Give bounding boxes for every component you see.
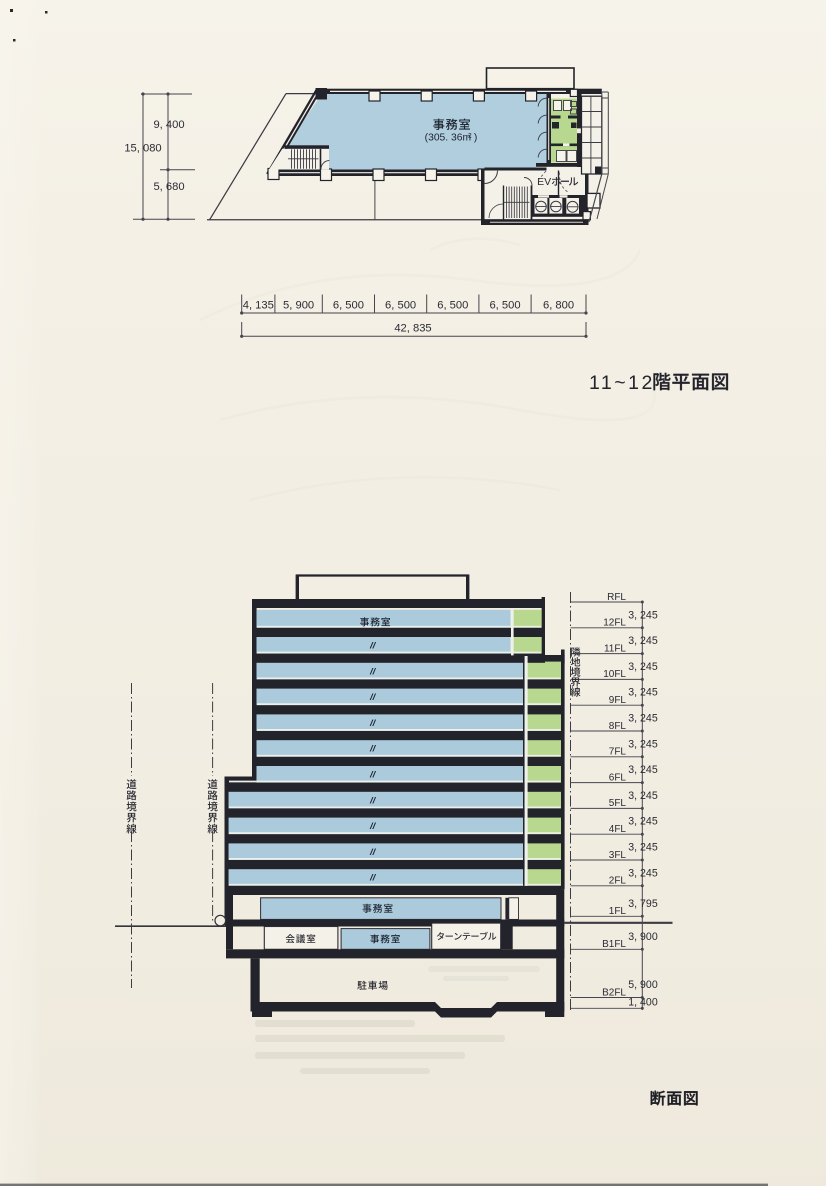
svg-text:3, 245: 3, 245	[628, 816, 658, 828]
svg-text:1FL: 1FL	[609, 906, 627, 917]
svg-text:10FL: 10FL	[603, 669, 626, 680]
svg-text:6, 500: 6, 500	[489, 300, 520, 312]
svg-text:3, 900: 3, 900	[628, 931, 658, 943]
svg-text:11FL: 11FL	[604, 643, 626, 654]
svg-text:6, 500: 6, 500	[437, 300, 468, 312]
svg-text:5, 900: 5, 900	[283, 300, 314, 312]
svg-text:12FL: 12FL	[603, 618, 626, 629]
svg-text:3, 245: 3, 245	[628, 661, 658, 673]
svg-text:V: V	[544, 176, 551, 188]
svg-text:15, 080: 15, 080	[124, 143, 161, 155]
svg-text:E: E	[537, 176, 544, 188]
svg-text:3FL: 3FL	[609, 850, 627, 861]
svg-text:9, 400: 9, 400	[153, 119, 184, 131]
svg-text:2FL: 2FL	[609, 876, 627, 887]
svg-text:3, 245: 3, 245	[628, 713, 658, 725]
svg-text:B2FL: B2FL	[602, 987, 626, 998]
svg-text:11~12: 11~12	[589, 372, 655, 394]
svg-text:5, 680: 5, 680	[153, 181, 184, 193]
svg-text:6, 500: 6, 500	[333, 300, 364, 312]
svg-text:3, 245: 3, 245	[628, 687, 658, 699]
svg-text:3, 245: 3, 245	[628, 635, 658, 647]
svg-text:6FL: 6FL	[609, 772, 627, 783]
svg-text:B1FL: B1FL	[602, 939, 626, 950]
svg-text:1, 400: 1, 400	[628, 996, 658, 1008]
svg-text:3, 245: 3, 245	[628, 867, 658, 879]
svg-text:3, 245: 3, 245	[628, 764, 658, 776]
svg-text:RFL: RFL	[607, 592, 626, 603]
svg-text:): )	[474, 133, 477, 144]
svg-text:3, 795: 3, 795	[628, 898, 658, 910]
svg-text:3, 245: 3, 245	[628, 790, 658, 802]
svg-text:5, 900: 5, 900	[628, 979, 658, 991]
svg-text:6, 500: 6, 500	[385, 300, 416, 312]
svg-text:8FL: 8FL	[609, 721, 627, 732]
svg-text:²: ²	[468, 133, 472, 144]
svg-text:4FL: 4FL	[609, 824, 627, 835]
svg-text:4, 135: 4, 135	[243, 300, 274, 312]
svg-text:6, 800: 6, 800	[543, 300, 574, 312]
svg-text:3, 245: 3, 245	[628, 609, 658, 621]
svg-text:7FL: 7FL	[609, 747, 627, 758]
svg-text:9FL: 9FL	[609, 695, 627, 706]
svg-text:3, 245: 3, 245	[628, 842, 658, 854]
svg-text:3, 245: 3, 245	[628, 738, 658, 750]
svg-text:42, 835: 42, 835	[394, 323, 431, 335]
svg-text:5FL: 5FL	[609, 798, 627, 809]
